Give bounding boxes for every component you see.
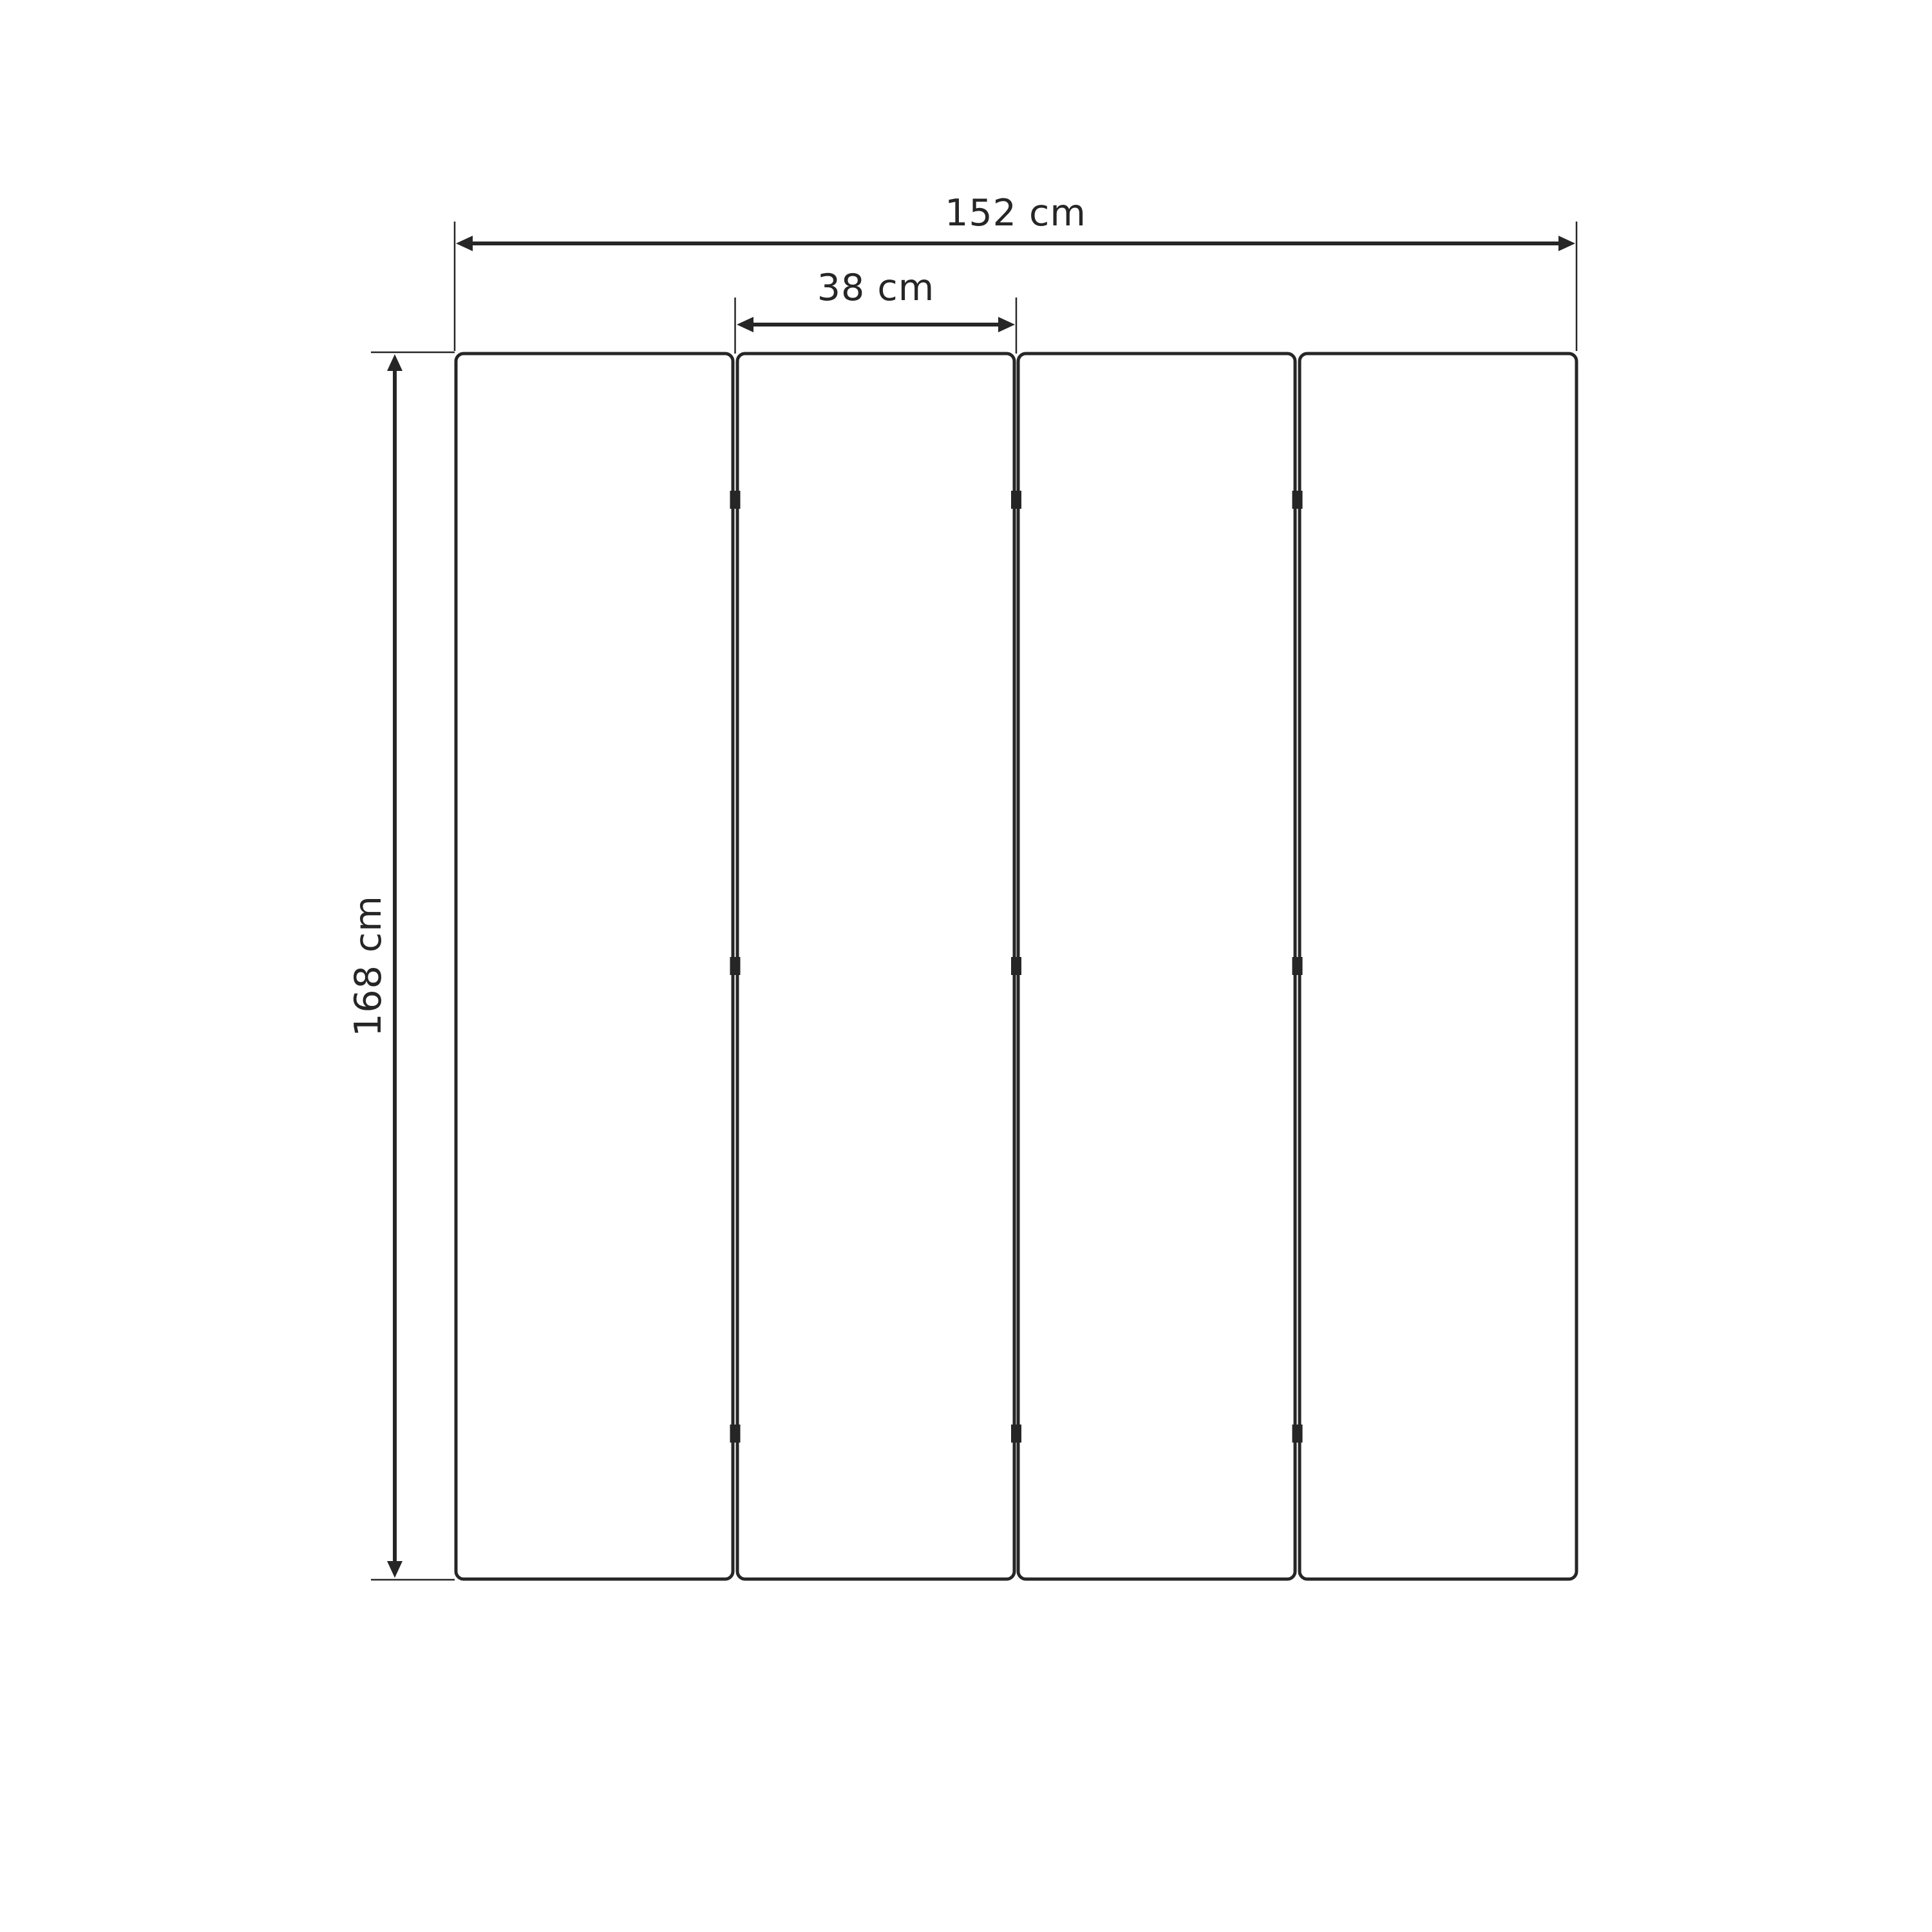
panel-width-label: 38 cm bbox=[817, 267, 935, 309]
height-dimension: 168 cm bbox=[347, 352, 455, 1580]
height-label: 168 cm bbox=[347, 895, 390, 1037]
panel-4 bbox=[1300, 354, 1577, 1579]
hinge-gap3-bottom-icon bbox=[1293, 1425, 1303, 1443]
panel-1 bbox=[456, 354, 733, 1579]
arrowhead-right-icon bbox=[998, 317, 1015, 332]
panel-3 bbox=[1018, 354, 1295, 1579]
total-width-label: 152 cm bbox=[945, 192, 1086, 234]
hinge-gap1-bottom-icon bbox=[730, 1425, 741, 1443]
hinge-gap2-middle-icon bbox=[1011, 957, 1021, 975]
hinge-gap2-bottom-icon bbox=[1011, 1425, 1021, 1443]
hinge-gap1-top-icon bbox=[730, 491, 741, 509]
panel-2 bbox=[737, 354, 1014, 1579]
arrowhead-left-icon bbox=[737, 317, 753, 332]
hinge-gap3-top-icon bbox=[1293, 491, 1303, 509]
hinge-gap2-top-icon bbox=[1011, 491, 1021, 509]
hinge-gap3-middle-icon bbox=[1293, 957, 1303, 975]
dimension-diagram: 152 cm 38 cm 168 cm bbox=[0, 0, 1932, 1932]
hinge-gap1-middle-icon bbox=[730, 957, 741, 975]
arrowhead-left-icon bbox=[456, 236, 473, 251]
panel-width-dimension: 38 cm bbox=[735, 267, 1017, 354]
arrowhead-up-icon bbox=[387, 354, 402, 371]
arrowhead-down-icon bbox=[387, 1561, 402, 1578]
arrowhead-right-icon bbox=[1558, 236, 1575, 251]
